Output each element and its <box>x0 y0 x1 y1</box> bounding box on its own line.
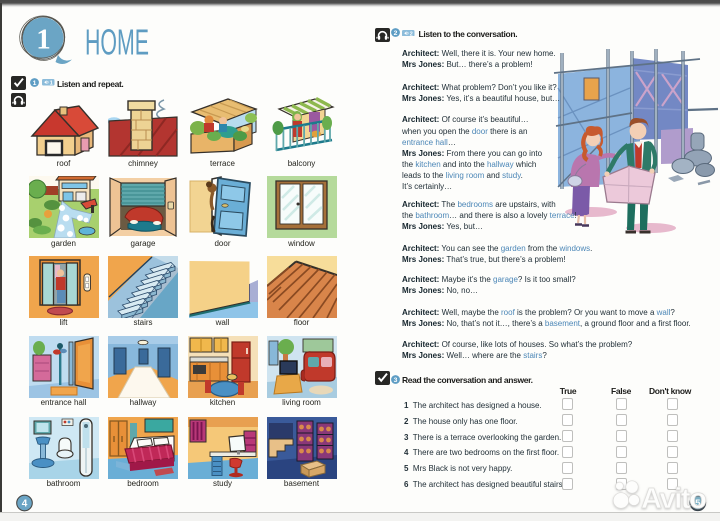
svg-text:Avito: Avito <box>641 483 706 515</box>
svg-text:3: 3 <box>393 377 397 384</box>
svg-text:2: 2 <box>394 30 398 37</box>
svg-text:HOME: HOME <box>85 24 149 58</box>
svg-text:1: 1 <box>36 24 51 56</box>
svg-text:2: 2 <box>410 31 413 36</box>
svg-text:1: 1 <box>33 80 37 87</box>
svg-text:1: 1 <box>50 80 53 85</box>
svg-text:4: 4 <box>22 499 28 510</box>
